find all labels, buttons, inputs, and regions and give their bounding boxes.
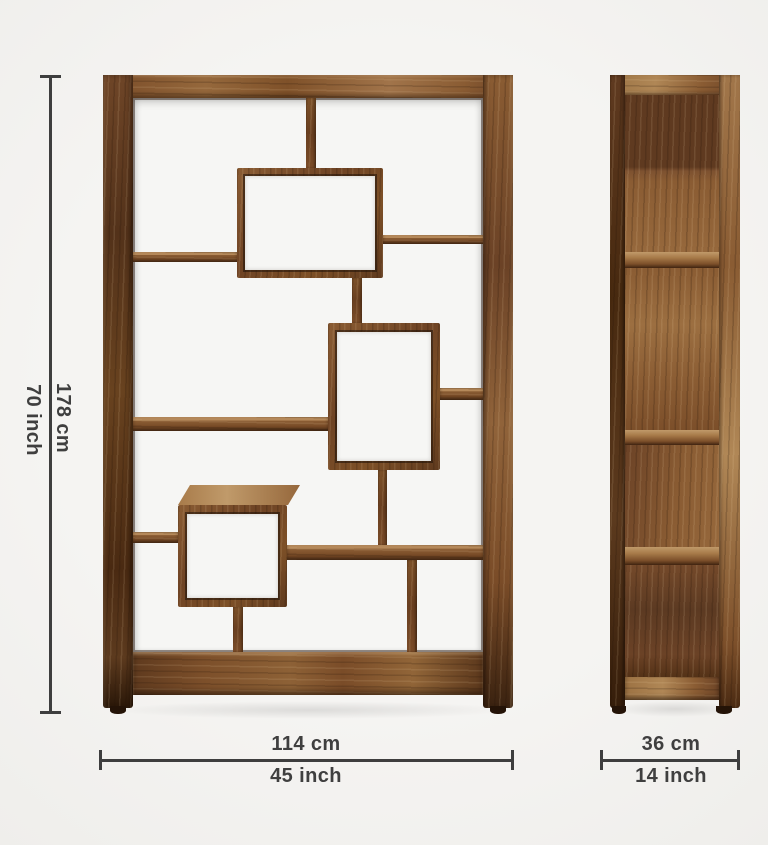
front-shelf-long-lower (287, 545, 483, 560)
depth-label-imperial: 14 inch (521, 763, 768, 789)
front-shelf-left-middle (133, 417, 328, 431)
side-left-stile (610, 75, 625, 708)
width-dimension-cap-left (99, 750, 102, 770)
width-label-imperial: 45 inch (156, 763, 456, 789)
front-shelf-right-upper (383, 235, 483, 244)
front-right-stile (483, 75, 513, 708)
side-shelf-1 (625, 252, 719, 268)
side-compartment-2 (625, 268, 719, 430)
front-display-cube-2 (328, 323, 440, 470)
side-shelf-2 (625, 430, 719, 445)
side-right-stile (719, 75, 740, 708)
front-divider-below-cube-3 (233, 607, 243, 652)
front-top-rail (103, 75, 513, 98)
front-left-foot (110, 706, 126, 714)
front-shelf-left-lower (133, 532, 178, 543)
side-compartment-3 (625, 445, 719, 547)
front-base-plinth (133, 652, 483, 695)
front-shelf-left-upper (133, 252, 237, 262)
side-left-foot (612, 706, 626, 714)
height-dimension-cap-top (40, 75, 61, 78)
front-display-cube-3 (178, 505, 287, 607)
side-compartment-1 (625, 95, 719, 252)
front-display-cube-3-opening (187, 514, 278, 598)
front-divider-between-cube-2-3 (378, 470, 387, 545)
front-view (103, 75, 513, 713)
front-right-foot (490, 706, 506, 714)
front-divider-top-middle (306, 98, 316, 168)
width-dimension-line (100, 759, 513, 762)
front-display-cube-1-opening (245, 176, 375, 270)
front-display-cube-1 (237, 168, 383, 278)
front-display-cube-3-top-face (178, 485, 300, 505)
height-label-metric: 178 cm (50, 358, 76, 478)
height-dimension-cap-bottom (40, 711, 61, 714)
side-shelf-3 (625, 547, 719, 565)
depth-dimension-line (601, 759, 740, 762)
width-dimension-cap-right (511, 750, 514, 770)
side-view (610, 75, 740, 713)
front-left-stile (103, 75, 133, 708)
front-shelf-right-middle (440, 388, 483, 400)
side-compartment-4 (625, 565, 719, 677)
width-label-metric: 114 cm (156, 731, 456, 757)
depth-label-metric: 36 cm (521, 731, 768, 757)
height-label-imperial: 70 inch (20, 360, 46, 480)
front-display-cube-2-opening (337, 332, 431, 461)
front-divider-bottom-right (407, 560, 417, 652)
side-right-foot (716, 706, 732, 714)
front-divider-between-cube-1-2 (352, 278, 362, 323)
side-base-front (625, 677, 719, 700)
